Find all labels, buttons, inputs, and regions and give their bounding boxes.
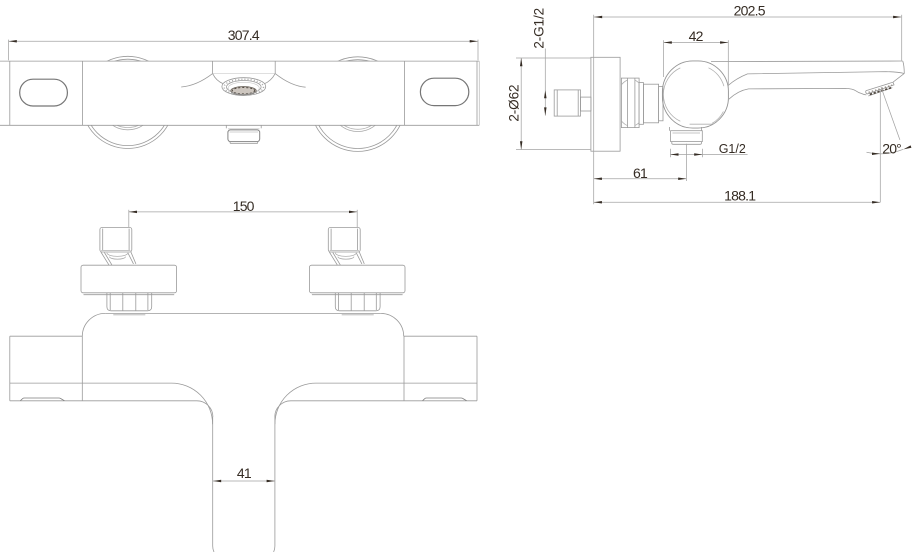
svg-text:188.1: 188.1: [724, 188, 756, 204]
svg-text:150: 150: [233, 198, 255, 214]
svg-text:G1/2: G1/2: [719, 142, 746, 156]
svg-text:41: 41: [237, 465, 252, 481]
svg-text:202.5: 202.5: [734, 3, 766, 19]
svg-text:61: 61: [633, 165, 648, 181]
svg-text:2-G1/2: 2-G1/2: [531, 8, 546, 49]
svg-text:307.4: 307.4: [228, 27, 260, 43]
svg-text:2-Ø62: 2-Ø62: [507, 85, 522, 122]
svg-text:20°: 20°: [882, 140, 901, 156]
svg-text:42: 42: [689, 28, 704, 44]
